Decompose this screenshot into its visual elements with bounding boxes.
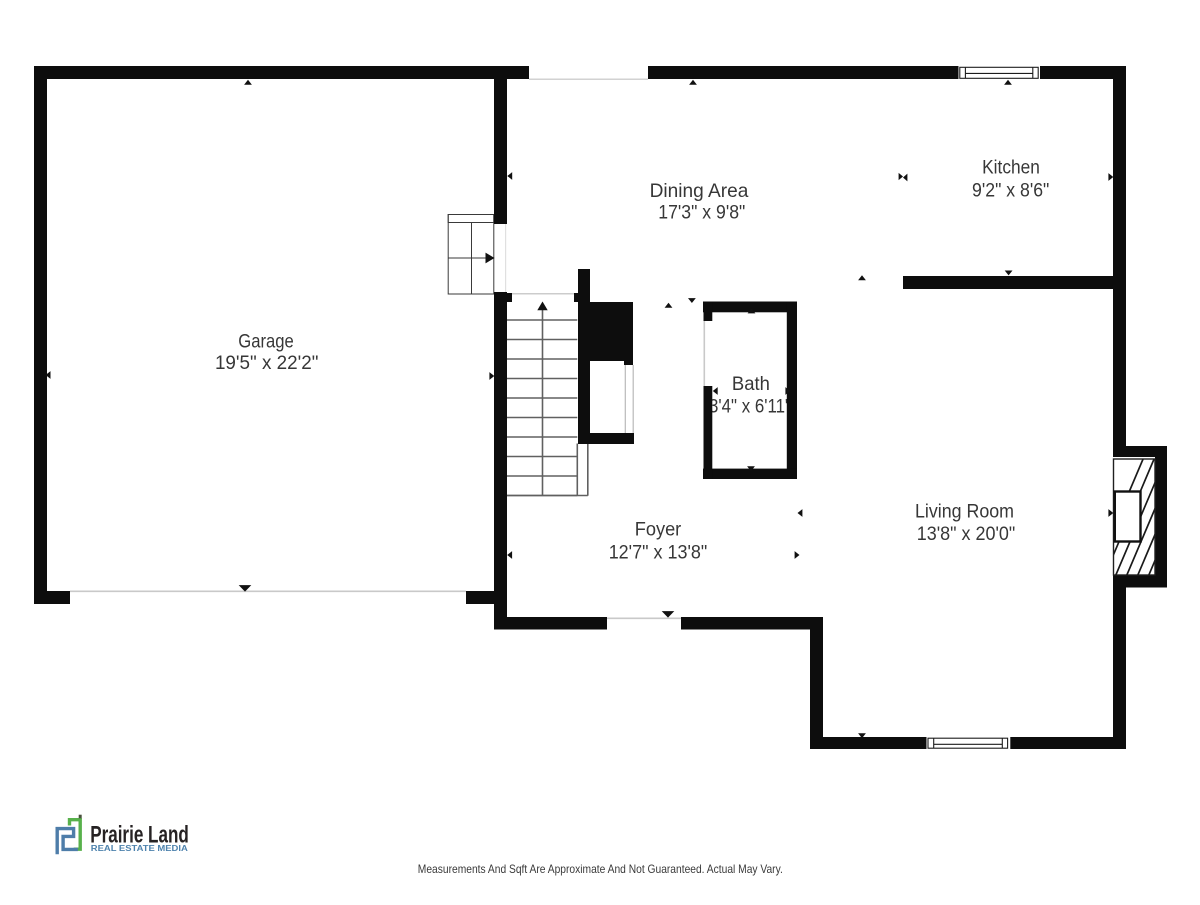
svg-text:REAL ESTATE MEDIA: REAL ESTATE MEDIA	[91, 844, 188, 853]
svg-text:Measurements And Sqft Are Appr: Measurements And Sqft Are Approximate An…	[418, 862, 783, 876]
svg-text:Kitchen: Kitchen	[982, 156, 1040, 178]
svg-text:Foyer: Foyer	[635, 518, 682, 540]
svg-text:9'2" x 8'6": 9'2" x 8'6"	[972, 179, 1049, 201]
svg-text:Garage: Garage	[238, 330, 294, 352]
svg-text:Living Room: Living Room	[915, 500, 1014, 522]
svg-text:13'8" x 20'0": 13'8" x 20'0"	[917, 523, 1016, 545]
svg-text:12'7" x 13'8": 12'7" x 13'8"	[609, 541, 708, 563]
svg-text:Dining Area: Dining Area	[650, 180, 749, 202]
svg-text:17'3" x 9'8": 17'3" x 9'8"	[658, 201, 745, 223]
svg-text:3'4" x 6'11": 3'4" x 6'11"	[709, 395, 791, 417]
svg-text:19'5" x 22'2": 19'5" x 22'2"	[215, 352, 319, 374]
svg-text:Bath: Bath	[732, 373, 770, 395]
